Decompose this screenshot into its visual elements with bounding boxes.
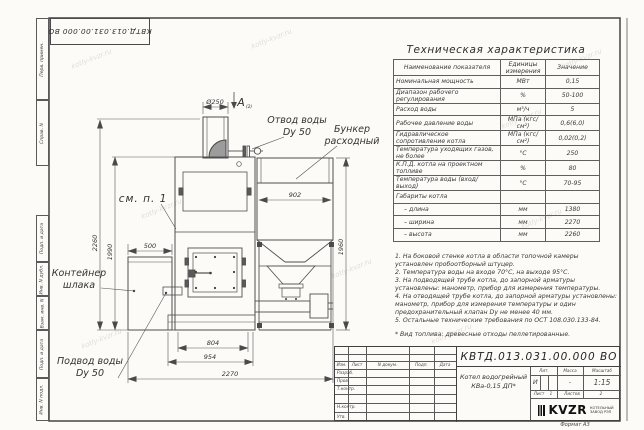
tb-role-label: Пров. [335, 377, 368, 385]
view-a-ref: (2) [246, 104, 253, 110]
dim-base-width: 954 [204, 353, 216, 361]
spec-value: 0,02(0,2) [546, 131, 600, 146]
grid-line [335, 354, 456, 355]
logo-text: KVZR [548, 403, 587, 417]
dim-slag-width: 500 [144, 242, 156, 250]
spec-row: Гидравлическое сопротивление котлаМПа (к… [394, 131, 600, 146]
tb-col-header: N докум. [366, 361, 409, 369]
slag-label-line1: Контейнер [52, 268, 106, 279]
spec-table-title: Техническая характеристика [393, 44, 599, 56]
spec-param: К.П.Д. котла на проектном топливе [394, 161, 501, 176]
spec-param: – ширина [394, 216, 501, 229]
sheet-label: Лист [533, 390, 545, 398]
note-item: 1. На боковой стенке котла в области топ… [395, 253, 617, 269]
tb-role-label: Утв. [335, 412, 368, 422]
water-outlet-fitting [228, 146, 263, 157]
see-note-label: см. п. 1 [119, 193, 168, 205]
view-a-label: А [236, 96, 245, 109]
top-doc-number: КВТД.013.031.00.000 ВО [48, 27, 152, 36]
grid-line [540, 375, 541, 390]
note-item: 5. Остальные технические требования по О… [395, 317, 617, 325]
tb-col-header: Изм. [335, 361, 348, 369]
margin-cell-reference-number: Справ. N [36, 100, 49, 166]
hopper-label-line1: Бункер [334, 124, 370, 135]
dim-total-width: 2270 [222, 370, 239, 378]
margin-label: Инв. N дубл. [40, 264, 45, 294]
margin-cell-signature-date-2: Подп. и дата [36, 330, 49, 378]
spec-value: 1380 [546, 203, 600, 216]
margin-label: Перв. примен. [40, 42, 45, 77]
spec-param: Номинальная мощность [394, 76, 501, 89]
grid-line [557, 390, 558, 398]
spec-param: Габариты котла [394, 191, 501, 204]
tb-doc-number: КВТД.013.031.00.000 ВО [456, 347, 621, 367]
notes-section: 1. На боковой стенке котла в области топ… [395, 253, 617, 339]
product-name-line1: Котел водогрейный [457, 373, 530, 382]
drawing-sheet: kotly-kvzr.ru kotly-kvzr.ru kotly-kvzr.r… [0, 0, 644, 430]
water-outlet-dn: Dy 50 [283, 127, 311, 138]
slag-container [128, 257, 182, 330]
tb-role-label [335, 394, 368, 403]
scale-header: Масштаб [583, 367, 621, 375]
spec-value: 0,6(6,0) [546, 116, 600, 131]
spec-header-row: Наименование показателя Единицы измерени… [394, 60, 600, 76]
spec-unit: МПа (кгс/см²) [501, 116, 546, 131]
margin-label: Инв. N подл. [40, 384, 45, 414]
spec-unit: % [501, 161, 546, 176]
spec-row: Расход водым³/ч5 [394, 103, 600, 116]
spec-param: Расход воды [394, 103, 501, 116]
company-name-line2: ЗАВОД РЭП [590, 410, 614, 414]
mass-value: - [557, 375, 583, 390]
spec-row: Номинальная мощностьМВт0,15 [394, 76, 600, 89]
spec-row: Температура уходящих газов, не более°С25… [394, 146, 600, 161]
tb-role-label: Разраб. [335, 369, 368, 377]
dim-hopper-height: 1960 [337, 239, 345, 256]
margin-cell-inventory-orig: Инв. N подл. [36, 378, 49, 421]
margin-label: Подп. и дата [40, 338, 45, 369]
spec-unit: °С [501, 176, 546, 191]
margin-cell-inventory-dup: Инв. N дубл. [36, 262, 49, 296]
note-item: 3. На подводящей трубе котла, до запорно… [395, 277, 617, 293]
spec-value: 50-100 [546, 88, 600, 103]
sheets-value: 2 [597, 390, 605, 398]
spec-param: – высота [394, 228, 501, 241]
spec-row: Рабочее давление водыМПа (кгс/см²)0,6(6,… [394, 116, 600, 131]
spec-unit: мм [501, 216, 546, 229]
spec-unit: % [501, 88, 546, 103]
lit-value: И [531, 375, 540, 390]
spec-row: – ширинамм2270 [394, 216, 600, 229]
spec-value: 70-95 [546, 176, 600, 191]
grid-line [434, 347, 435, 420]
dim-boiler-height: 1990 [106, 244, 114, 261]
format-label: Формат А3 [530, 422, 620, 428]
dim-furnace-width: 804 [207, 339, 219, 347]
margin-label: Подп. и дата [40, 223, 45, 254]
margin-cell-replace-inv: Взам. инв. N [36, 296, 49, 330]
spec-value [546, 191, 600, 204]
slag-label-line2: шлака [63, 280, 95, 291]
lit-header: Лит. [531, 367, 557, 375]
spec-param: Диапазон рабочего регулирования [394, 88, 501, 103]
spec-value: 80 [546, 161, 600, 176]
margin-label: Справ. N [40, 122, 45, 143]
tb-role-label: Н.контр. [335, 403, 368, 412]
water-outlet-label: Отвод воды [267, 115, 327, 126]
sheets-label: Листов [561, 390, 583, 398]
dim-total-height: 2260 [91, 235, 99, 252]
spec-row: Температура воды (вход/выход)°С70-95 [394, 176, 600, 191]
dim-hopper-width: 902 [289, 191, 301, 199]
spec-value: 0,15 [546, 76, 600, 89]
company-name: КОТЕЛЬНЫЙ ЗАВОД РЭП [590, 406, 614, 415]
spec-header: Наименование показателя [394, 60, 501, 76]
spec-value: 2260 [546, 228, 600, 241]
spec-unit: °С [501, 146, 546, 161]
tb-product-name: Котел водогрейный КВа-0,15 ДП* [456, 367, 531, 422]
spec-value: 5 [546, 103, 600, 116]
spec-table: Наименование показателя Единицы измерени… [393, 59, 600, 242]
spec-unit [501, 191, 546, 204]
margin-cell-signature-date-1: Подп. и дата [36, 215, 49, 262]
technical-spec-section: Техническая характеристика Наименование … [393, 44, 599, 242]
spec-row: Диапазон рабочего регулирования%50-100 [394, 88, 600, 103]
spec-param: Рабочее давление воды [394, 116, 501, 131]
logo-bars-icon [538, 405, 545, 416]
grid-line [548, 375, 549, 390]
dim-chimney-diameter: Ø250 [205, 98, 224, 106]
boiler-body [168, 157, 255, 330]
product-name-line2: КВа-0,15 ДП* [457, 382, 530, 391]
hopper-label-line2: расходный [324, 136, 380, 147]
spec-unit: МПа (кгс/см²) [501, 131, 546, 146]
note-item: 4. На отводящей трубе котла, до запорной… [395, 293, 617, 317]
tb-role-label: Т.контр. [335, 385, 368, 394]
furnace-door [185, 248, 246, 297]
dimension-labels: Ø250 2260 1990 500 902 1960 804 954 2270 [91, 98, 345, 378]
title-block: Изм. Лист N докум. Подп. Дата Разраб. Пр… [334, 346, 620, 421]
spec-value: 250 [546, 146, 600, 161]
scale-value: 1:15 [583, 375, 621, 390]
tb-col-header: Подп. [409, 361, 434, 369]
spec-row: – высотамм2260 [394, 228, 600, 241]
spec-unit: м³/ч [501, 103, 546, 116]
fuel-note: * Вид топлива: древесные отходы пеллетир… [395, 331, 617, 339]
mass-header: Масса [557, 367, 583, 375]
chimney [203, 117, 228, 158]
tb-col-header: Дата [434, 361, 456, 369]
spec-header: Значение [546, 60, 600, 76]
spec-row: Габариты котла [394, 191, 600, 204]
view-a-marker: А (2) [231, 92, 252, 110]
fuel-hopper [257, 158, 334, 330]
spec-row: К.П.Д. котла на проектном топливе%80 [394, 161, 600, 176]
spec-unit: мм [501, 228, 546, 241]
tb-col-header: Лист [348, 361, 366, 369]
spec-value: 2270 [546, 216, 600, 229]
spec-param: Температура воды (вход/выход) [394, 176, 501, 191]
top-doc-number-stamp: КВТД.013.031.00.000 ВО [50, 18, 150, 45]
spec-param: Гидравлическое сопротивление котла [394, 131, 501, 146]
spec-param: Температура уходящих газов, не более [394, 146, 501, 161]
spec-unit: МВт [501, 76, 546, 89]
spec-header: Единицы измерения [501, 60, 546, 76]
spec-param: – длина [394, 203, 501, 216]
spec-unit: мм [501, 203, 546, 216]
sheet-value: 1 [547, 390, 555, 398]
screw-feeder [255, 294, 333, 318]
margin-label: Взам. инв. N [40, 298, 45, 328]
spec-row: – длинамм1380 [394, 203, 600, 216]
water-inlet-label: Подвод воды [57, 356, 124, 367]
note-item: 2. Температура воды на входе 70°С, на вы… [395, 269, 617, 277]
grid-line [409, 347, 410, 420]
company-logo: KVZR КОТЕЛЬНЫЙ ЗАВОД РЭП [531, 398, 621, 422]
water-inlet-dn: Dy 50 [76, 368, 104, 379]
